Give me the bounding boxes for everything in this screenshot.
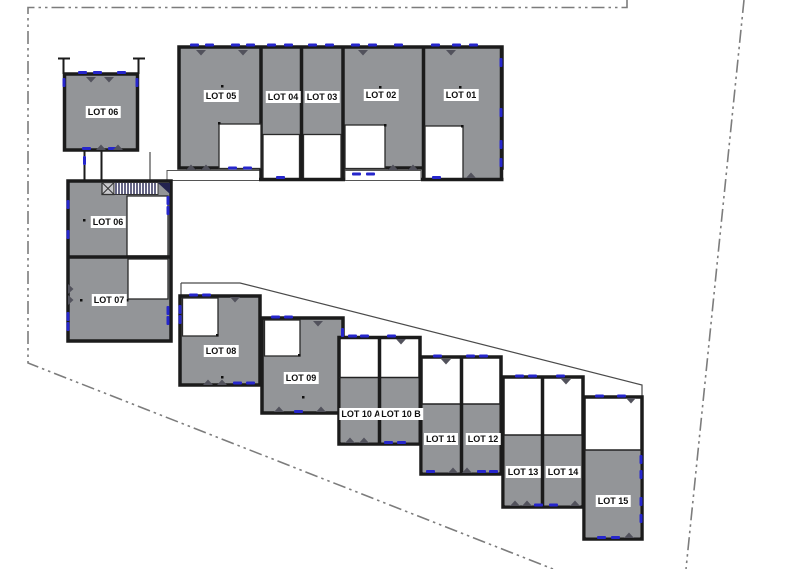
lot-label-08: LOT 08 — [204, 345, 239, 357]
lot-label-11: LOT 11 — [424, 433, 458, 445]
lot-label-13: LOT 13 — [506, 466, 541, 478]
lot-label-06: LOT 06 — [91, 216, 126, 228]
courtyard-lot05 — [219, 124, 261, 169]
building-north-row — [179, 47, 504, 181]
lot-label-10a: LOT 10 A — [339, 408, 382, 420]
courtyard-lot02 — [345, 125, 385, 169]
courtyard-lot07 — [128, 259, 168, 299]
courtyard-lot08 — [183, 298, 219, 336]
lot-label-10b: LOT 10 B — [379, 408, 423, 420]
site-plan: LOT 06 LOT 05 LOT 04 LOT 03 LOT 02 LOT 0… — [0, 0, 800, 569]
lot-label-15: LOT 15 — [596, 495, 631, 507]
courtyard-lot01 — [425, 126, 463, 179]
lot-label-01: LOT 01 — [444, 89, 479, 101]
courtyard-lot03 — [304, 135, 342, 180]
lot-label-07: LOT 07 — [92, 294, 127, 306]
building-lot06-lot07 — [68, 181, 171, 341]
courtyard-lot09 — [265, 320, 301, 356]
lot-label-09: LOT 09 — [284, 372, 319, 384]
courtyard-lot06 — [127, 196, 168, 256]
building-garage-lot06 — [58, 58, 145, 181]
plan-drawing — [0, 0, 800, 569]
lot-label-04: LOT 04 — [266, 91, 301, 103]
lot-label-02: LOT 02 — [364, 89, 399, 101]
boundary-right — [686, 0, 744, 569]
lot-label-03: LOT 03 — [305, 91, 340, 103]
lot-label-05: LOT 05 — [204, 90, 239, 102]
lot-label-14: LOT 14 — [546, 466, 581, 478]
lot-label-06-garage: LOT 06 — [86, 106, 121, 118]
courtyard-lot04 — [263, 135, 300, 180]
lot-label-12: LOT 12 — [466, 433, 501, 445]
